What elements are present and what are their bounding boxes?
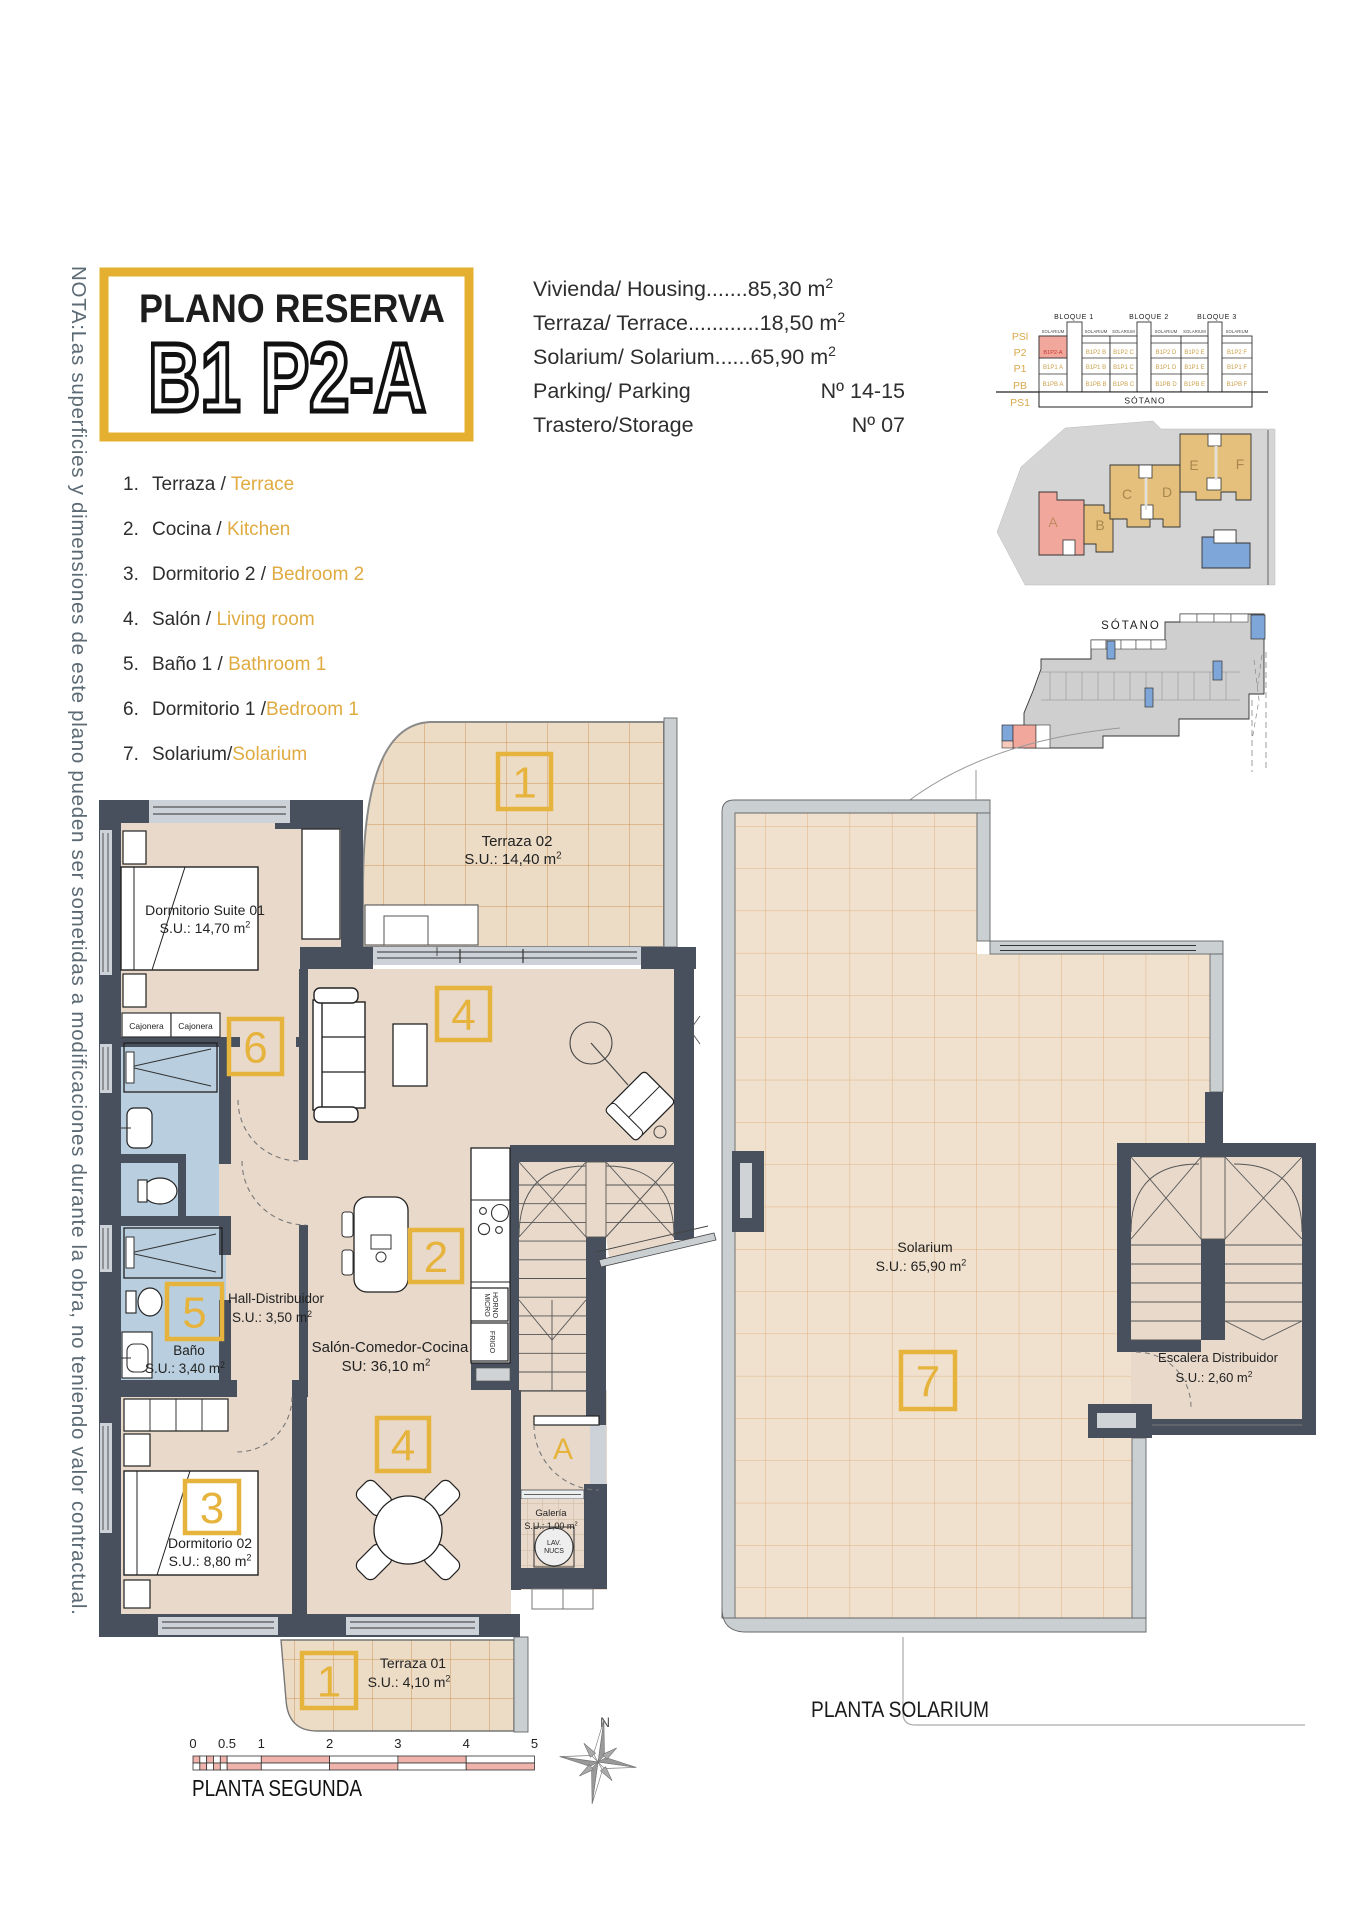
svg-text:Escalera Distribuidor: Escalera Distribuidor [1158, 1350, 1279, 1365]
svg-text:5: 5 [531, 1736, 538, 1751]
svg-text:3: 3 [200, 1484, 224, 1533]
svg-text:5: 5 [182, 1288, 206, 1337]
svg-text:B1P1 B: B1P1 B [1086, 365, 1106, 371]
svg-text:0.5: 0.5 [218, 1736, 236, 1751]
svg-text:3.: 3. [123, 564, 139, 585]
svg-text:S.U.: 1,00 m2: S.U.: 1,00 m2 [524, 1521, 577, 1531]
svg-text:SOLARIUM: SOLARIUM [1085, 329, 1108, 334]
svg-text:Trastero/Storage: Trastero/Storage [533, 413, 694, 437]
svg-text:Nº 07: Nº 07 [852, 413, 905, 437]
svg-text:Solarium/ Solarium......65,90: Solarium/ Solarium......65,90 m2 [533, 343, 836, 369]
svg-text:4: 4 [463, 1736, 470, 1751]
svg-text:1: 1 [317, 1657, 341, 1706]
svg-text:Baño 1 / Bathroom 1: Baño 1 / Bathroom 1 [152, 654, 326, 675]
svg-text:Salón-Comedor-Cocina: Salón-Comedor-Cocina [312, 1339, 469, 1356]
svg-text:B1PB C: B1PB C [1113, 382, 1135, 388]
svg-text:6: 6 [243, 1023, 267, 1072]
svg-text:SOLARIUM: SOLARIUM [1226, 329, 1249, 334]
svg-text:1: 1 [258, 1736, 265, 1751]
svg-text:MICRO: MICRO [483, 1293, 490, 1317]
svg-text:NUCS: NUCS [544, 1548, 564, 1555]
svg-text:B1P1 E: B1P1 E [1184, 365, 1204, 371]
svg-text:B1P2-A: B1P2-A [1043, 350, 1063, 356]
svg-text:Cajonera: Cajonera [178, 1021, 213, 1031]
svg-text:B1P1 A: B1P1 A [1043, 365, 1063, 371]
svg-text:C: C [1122, 486, 1132, 502]
svg-text:B1P1 D: B1P1 D [1156, 365, 1177, 371]
svg-text:3: 3 [394, 1736, 401, 1751]
svg-text:A: A [1048, 514, 1058, 530]
svg-text:B1 P2-A: B1 P2-A [148, 323, 426, 432]
svg-text:B1P2 F: B1P2 F [1227, 350, 1247, 356]
svg-text:BLOQUE 1: BLOQUE 1 [1054, 314, 1094, 321]
svg-text:Dormitorio 1 /Bedroom 1: Dormitorio 1 /Bedroom 1 [152, 699, 359, 720]
svg-text:B1PB B: B1PB B [1085, 382, 1106, 388]
svg-text:SÓTANO: SÓTANO [1124, 396, 1165, 406]
svg-text:N: N [600, 1714, 610, 1730]
svg-text:B1P2 E: B1P2 E [1184, 350, 1204, 356]
svg-text:S.U.: 3,50 m2: S.U.: 3,50 m2 [232, 1309, 312, 1325]
svg-text:S.U.: 8,80 m2: S.U.: 8,80 m2 [169, 1553, 252, 1569]
svg-text:B1P2 B: B1P2 B [1086, 350, 1106, 356]
svg-text:S.U.: 3,40 m2: S.U.: 3,40 m2 [145, 1360, 225, 1376]
svg-text:B1PB D: B1PB D [1155, 382, 1177, 388]
svg-text:SOLARIUM: SOLARIUM [1112, 329, 1135, 334]
svg-text:B1PB E: B1PB E [1184, 382, 1205, 388]
svg-text:SÓTANO: SÓTANO [1101, 619, 1161, 632]
svg-text:SOLARIUM: SOLARIUM [1155, 329, 1178, 334]
svg-text:PB: PB [1013, 380, 1027, 392]
svg-text:B1P2 D: B1P2 D [1156, 350, 1177, 356]
svg-text:B1PB A: B1PB A [1043, 382, 1064, 388]
svg-text:Dormitorio 2 / Bedroom 2: Dormitorio 2 / Bedroom 2 [152, 564, 364, 585]
svg-text:D: D [1162, 484, 1172, 500]
svg-text:Galería: Galería [535, 1508, 567, 1519]
svg-text:6.: 6. [123, 699, 139, 720]
svg-text:LAV.: LAV. [547, 1540, 561, 1547]
svg-text:PSl: PSl [1012, 331, 1028, 343]
svg-text:PS1: PS1 [1010, 397, 1030, 409]
svg-text:BLOQUE 2: BLOQUE 2 [1129, 314, 1169, 321]
svg-text:1: 1 [512, 758, 536, 807]
svg-text:B: B [1095, 517, 1104, 533]
svg-text:S.U.: 14,40 m2: S.U.: 14,40 m2 [464, 850, 561, 868]
svg-text:BLOQUE 3: BLOQUE 3 [1197, 314, 1237, 321]
svg-text:Vivienda/ Housing.......85,30: Vivienda/ Housing.......85,30 m2 [533, 275, 833, 301]
svg-text:B1P2 C: B1P2 C [1113, 350, 1134, 356]
svg-text:7: 7 [916, 1357, 940, 1406]
svg-text:4: 4 [451, 991, 475, 1040]
svg-text:2: 2 [424, 1233, 448, 1282]
svg-text:S.U.: 2,60 m2: S.U.: 2,60 m2 [1176, 1369, 1253, 1385]
svg-text:PLANTA SOLARIUM: PLANTA SOLARIUM [811, 1697, 989, 1722]
svg-text:Solarium: Solarium [897, 1239, 952, 1255]
svg-text:S.U.: 65,90 m2: S.U.: 65,90 m2 [876, 1258, 967, 1274]
svg-text:7.: 7. [123, 744, 139, 765]
svg-text:NOTA:Las superficies y dimensi: NOTA:Las superficies y dimensiones de es… [67, 266, 90, 1616]
svg-text:Salón / Living room: Salón / Living room [152, 609, 315, 630]
svg-text:S.U.: 4,10 m2: S.U.: 4,10 m2 [368, 1674, 451, 1690]
svg-text:4: 4 [391, 1421, 415, 1470]
svg-text:Baño: Baño [173, 1343, 205, 1358]
svg-text:SOLARIUM: SOLARIUM [1042, 329, 1065, 334]
svg-text:P1: P1 [1014, 363, 1027, 375]
svg-text:Terraza 01: Terraza 01 [380, 1655, 446, 1671]
svg-text:Nº 14-15: Nº 14-15 [821, 379, 905, 403]
svg-text:4.: 4. [123, 609, 139, 630]
svg-text:B1P1 F: B1P1 F [1227, 365, 1247, 371]
svg-text:E: E [1189, 457, 1198, 473]
svg-text:SU: 36,10 m2: SU: 36,10 m2 [342, 1357, 431, 1375]
svg-text:Dormitorio Suite 01: Dormitorio Suite 01 [145, 902, 265, 918]
svg-text:Terraza 02: Terraza 02 [482, 833, 553, 850]
svg-text:FRIGO: FRIGO [488, 1331, 495, 1354]
svg-text:Solarium/Solarium: Solarium/Solarium [152, 744, 307, 765]
svg-text:Dormitorio 02: Dormitorio 02 [168, 1535, 252, 1551]
svg-text:Terraza / Terrace: Terraza / Terrace [152, 474, 294, 495]
svg-text:B1PB F: B1PB F [1227, 382, 1248, 388]
svg-text:P2: P2 [1014, 347, 1027, 359]
svg-text:1.: 1. [123, 474, 139, 495]
svg-text:F: F [1236, 456, 1245, 472]
svg-text:S.U.: 14,70 m2: S.U.: 14,70 m2 [160, 920, 251, 936]
svg-text:5.: 5. [123, 654, 139, 675]
svg-text:B1P1 C: B1P1 C [1113, 365, 1134, 371]
svg-text:Cocina / Kitchen: Cocina / Kitchen [152, 519, 290, 540]
svg-text:Hall-Distribuidor: Hall-Distribuidor [228, 1291, 325, 1306]
svg-text:2.: 2. [123, 519, 139, 540]
svg-text:Terraza/ Terrace............18: Terraza/ Terrace............18,50 m2 [533, 309, 845, 335]
svg-text:PLANTA SEGUNDA: PLANTA SEGUNDA [192, 1775, 363, 1801]
svg-text:A: A [553, 1433, 573, 1466]
svg-text:Cajonera: Cajonera [129, 1021, 164, 1031]
svg-text:0: 0 [189, 1736, 196, 1751]
svg-text:HORNO: HORNO [491, 1292, 498, 1319]
svg-text:Parking/ Parking: Parking/ Parking [533, 379, 691, 403]
svg-text:SOLARIUM: SOLARIUM [1183, 329, 1206, 334]
svg-text:2: 2 [326, 1736, 333, 1751]
